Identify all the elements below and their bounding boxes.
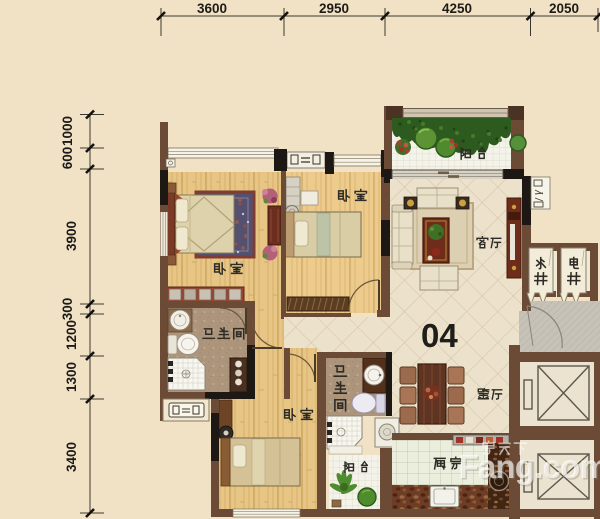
svg-text:1200: 1200 — [64, 320, 79, 350]
svg-text:2950: 2950 — [319, 1, 349, 16]
svg-text:300: 300 — [60, 298, 75, 321]
svg-text:3900: 3900 — [64, 221, 79, 251]
svg-text:04: 04 — [421, 317, 458, 354]
svg-text:600: 600 — [60, 147, 75, 170]
svg-text:1000: 1000 — [60, 116, 75, 146]
svg-text:2050: 2050 — [549, 1, 579, 16]
svg-text:3600: 3600 — [197, 1, 227, 16]
svg-text:1300: 1300 — [64, 362, 79, 392]
svg-text:Fang.com: Fang.com — [459, 448, 600, 485]
svg-text:4250: 4250 — [442, 1, 472, 16]
svg-text:3400: 3400 — [64, 442, 79, 472]
